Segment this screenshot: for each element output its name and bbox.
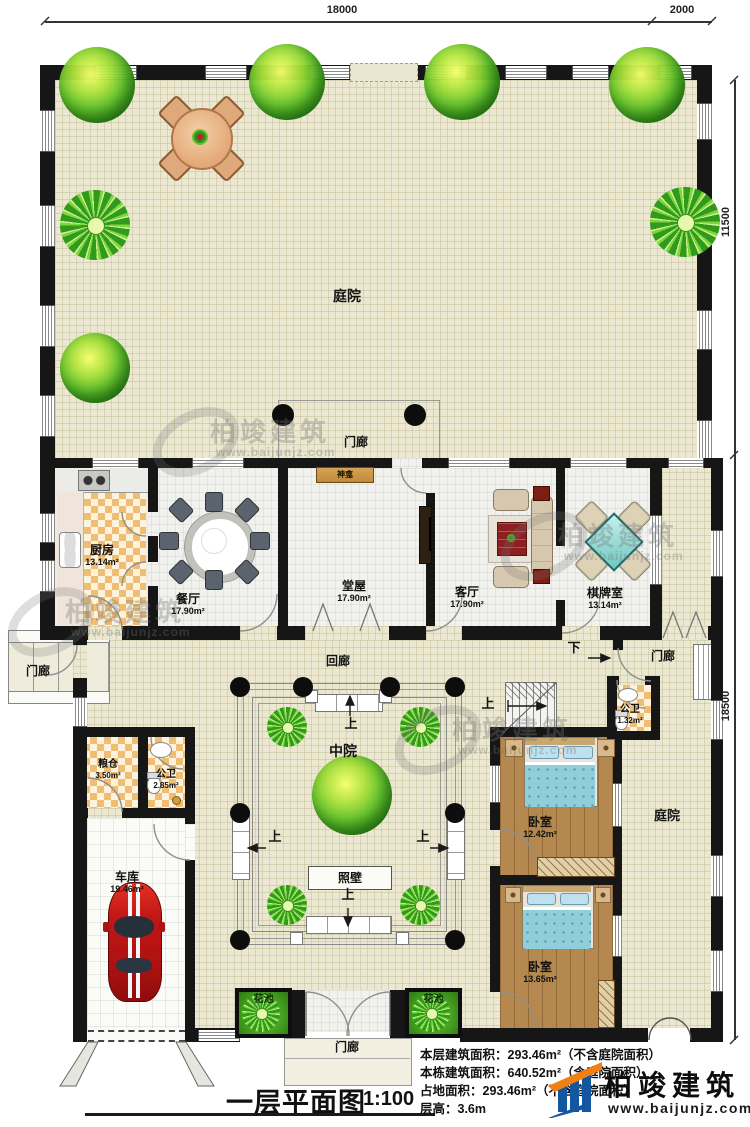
room-label-hall: 堂屋 17.90m² (322, 579, 386, 604)
palm-center (256, 1008, 267, 1019)
room-area: 19.46m² (95, 884, 159, 895)
sofa-main (531, 496, 553, 576)
room-label-living: 客厅 17.90m² (435, 585, 499, 610)
dim-line-right (734, 80, 736, 1040)
palm-center (282, 722, 294, 734)
door-arc (500, 992, 536, 1028)
palm-plant (400, 707, 440, 747)
stair-up-label: 上 (266, 830, 284, 844)
nightstand (505, 887, 521, 903)
tree (424, 44, 500, 120)
palm-center (282, 900, 294, 912)
pillow (527, 893, 556, 905)
room-label-kitchen: 厨房 13.14m² (68, 543, 136, 568)
brand-logo: 柏竣建筑 www.baijunjz.com (548, 1060, 748, 1120)
entry-door-arc (347, 992, 390, 1036)
room-label-bath-right: 公卫 1.32m² (604, 704, 656, 726)
room-label-courtyard-top: 庭院 (317, 289, 377, 304)
car-stripes (128, 884, 140, 998)
folding-door-chevron (313, 604, 333, 631)
room-name: 厨房 (68, 543, 136, 557)
palm-plant (400, 885, 440, 925)
room-label-garage: 车库 19.46m² (95, 870, 159, 895)
room-label-courtyard-right: 庭院 (637, 809, 697, 823)
car-windshield (114, 916, 154, 938)
chair (250, 532, 270, 550)
room-label-bedroom-upper: 卧室 12.42m² (508, 815, 572, 840)
dim-label-right-lower-height: 18500 (720, 682, 732, 730)
room-label-porch-right: 门廊 (635, 650, 691, 663)
room-name: 客厅 (435, 585, 499, 599)
dim-label-top-right-width: 2000 (660, 4, 704, 16)
closet (537, 857, 615, 877)
room-name: 公卫 (140, 769, 192, 781)
stair-up-label: 上 (414, 830, 432, 844)
sink (618, 688, 638, 702)
garage-ramp-right (176, 1042, 214, 1086)
room-name: 粮仓 (76, 759, 140, 771)
bed-headboard (523, 886, 591, 892)
brand-site: www.baijunjz.com (608, 1100, 750, 1116)
room-label-porch-bottom: 门廊 (317, 1041, 377, 1054)
wardrobe (598, 980, 615, 1028)
folding-door-chevron (663, 612, 683, 638)
room-name: 棋牌室 (566, 586, 644, 600)
dim-line-top (45, 21, 712, 23)
pillow (560, 893, 589, 905)
brand-name: 柏竣建筑 (604, 1064, 740, 1104)
end-table (533, 486, 550, 501)
pillow (529, 746, 559, 759)
palm-center (426, 1008, 437, 1019)
tree (609, 47, 685, 123)
room-label-cloister: 回廊 (308, 655, 368, 668)
bed-blanket (525, 762, 595, 807)
palm-plant (267, 885, 307, 925)
car-mirror (159, 922, 165, 932)
room-area: 17.90m² (322, 593, 386, 604)
tv-screen (429, 517, 431, 551)
room-label-flower-bed-right: 花池 (407, 994, 460, 1005)
room-area: 13.14m² (68, 557, 136, 568)
nightstand (505, 739, 523, 757)
palm-plant (60, 190, 130, 260)
room-area: 12.42m² (508, 829, 572, 840)
palm-center (415, 900, 427, 912)
room-name: 车库 (95, 870, 159, 884)
room-label-dining: 餐厅 17.90m² (156, 592, 220, 617)
room-label-porch-left: 门廊 (10, 665, 66, 678)
room-area: 1.32m² (604, 716, 656, 726)
floor-plan-canvas: 照壁 (0, 0, 750, 1127)
room-area: 17.90m² (156, 606, 220, 617)
dim-label-right-upper-height: 11500 (720, 198, 732, 246)
palm-plant (267, 707, 307, 747)
outdoor-table-plant (192, 129, 208, 145)
tree (249, 44, 325, 120)
dim-label-top-width: 18000 (307, 4, 377, 16)
tree (312, 755, 392, 835)
bed-blanket (523, 907, 591, 949)
bed-headboard (525, 738, 595, 745)
car-rear-glass (116, 958, 152, 973)
room-name: 公卫 (604, 704, 656, 716)
double-door-m (649, 1018, 691, 1040)
room-label-middle-court: 中院 (313, 744, 373, 759)
folding-door-chevron (686, 612, 706, 638)
tree (60, 333, 130, 403)
pillow (563, 746, 593, 759)
garage-ramp-left (60, 1042, 98, 1086)
room-area: 17.90m² (435, 599, 499, 610)
room-label-bath-left: 公卫 2.85m² (140, 769, 192, 791)
door-arc (88, 778, 122, 812)
room-area: 13.14m² (566, 600, 644, 611)
end-table (533, 569, 550, 584)
room-label-bedroom-lower: 卧室 13.65m² (508, 960, 572, 985)
car (108, 882, 160, 1000)
room-label-flower-bed-left: 花池 (237, 994, 290, 1005)
palm-plant (650, 187, 720, 257)
door-arc (88, 596, 122, 630)
room-label-granary: 粮仓 3.50m² (76, 759, 140, 781)
logo-building-icon (548, 1062, 602, 1116)
stair-down-label: 下 (565, 641, 583, 655)
palm-center (677, 214, 696, 233)
bed (522, 885, 594, 949)
chair (205, 570, 223, 590)
bed (524, 737, 598, 807)
chair (159, 532, 179, 550)
entry-door-arc (306, 992, 349, 1036)
room-label-porch-top: 门廊 (326, 436, 386, 449)
door-arc (122, 512, 146, 536)
stair-break-line (503, 683, 556, 733)
door-arc (154, 824, 190, 860)
car-mirror (103, 922, 109, 932)
plan-scale: 1:100 (363, 1088, 414, 1111)
nightstand (595, 887, 611, 903)
door-arc (401, 468, 426, 493)
tree (59, 47, 135, 123)
room-area: 3.50m² (76, 771, 140, 781)
nightstand (597, 739, 615, 757)
logo-bar (558, 1086, 567, 1112)
room-name: 餐厅 (156, 592, 220, 606)
coffee-table-plant (507, 534, 515, 542)
stair-up-label: 上 (479, 697, 497, 711)
stair-up-label: 上 (339, 888, 357, 902)
room-area: 13.65m² (508, 974, 572, 985)
folding-door-chevron (360, 604, 380, 631)
floor-drain (172, 796, 181, 805)
dining-table-inner (201, 528, 227, 554)
room-name: 卧室 (508, 960, 572, 974)
room-area: 2.85m² (140, 781, 192, 791)
stair-up-label: 上 (342, 717, 360, 731)
chair (205, 492, 223, 512)
sofa-single (493, 489, 529, 511)
palm-center (87, 217, 106, 236)
room-name: 堂屋 (322, 579, 386, 593)
title-underline (85, 1113, 435, 1116)
door-arc (240, 594, 277, 631)
room-label-mahjong: 棋牌室 13.14m² (566, 586, 644, 611)
room-name: 卧室 (508, 815, 572, 829)
palm-center (415, 722, 427, 734)
sink (150, 742, 172, 758)
